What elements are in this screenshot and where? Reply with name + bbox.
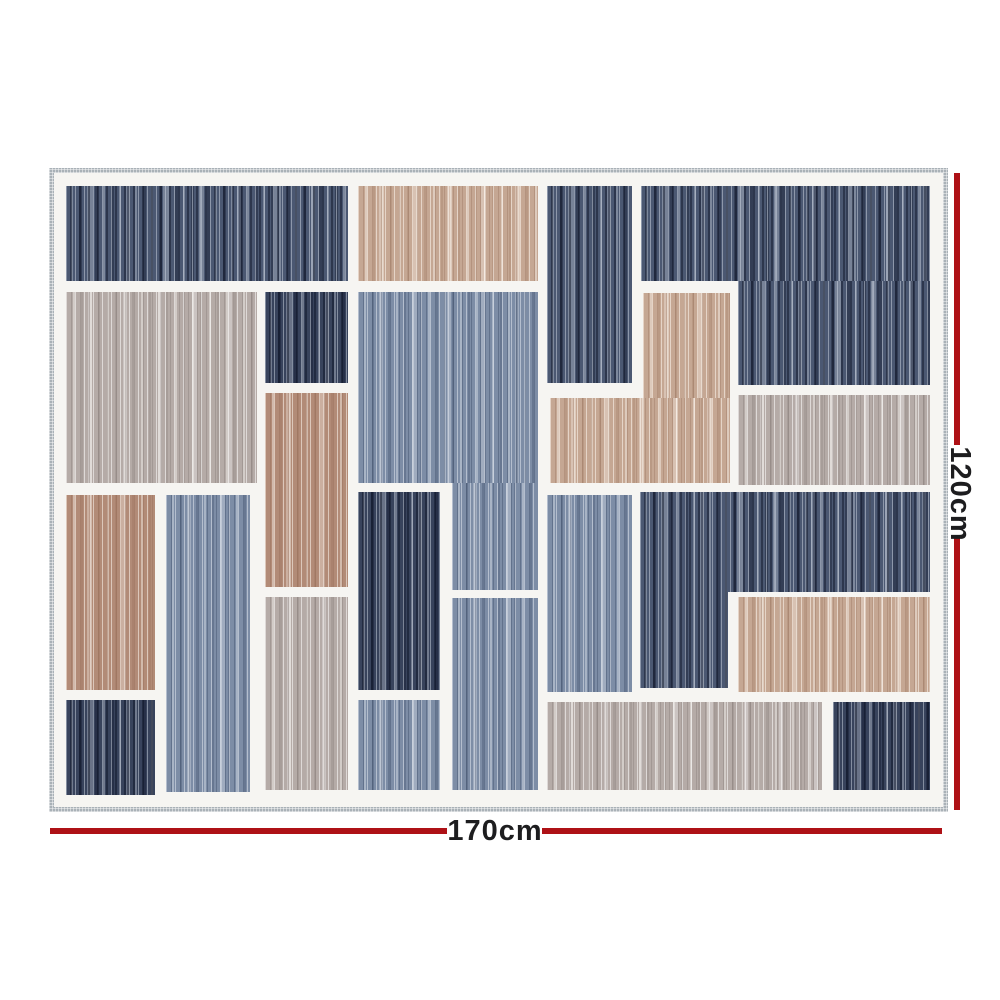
height-dimension-line-top (954, 173, 960, 445)
rug-block (547, 702, 822, 790)
rug-block (66, 186, 348, 281)
rug-block (452, 598, 538, 790)
rug-block (738, 395, 930, 485)
width-dimension-line-left (50, 828, 447, 834)
rug-block (265, 597, 348, 790)
rug-block (738, 597, 930, 692)
product-photo-canvas: 170cm 120cm (0, 0, 1000, 1000)
rug-block (641, 186, 930, 281)
rug-block (358, 700, 440, 790)
rug-block (358, 292, 538, 483)
rug-block (550, 398, 730, 483)
height-dimension-line-bottom (954, 538, 960, 810)
rug-block (66, 700, 155, 795)
rug-block (66, 495, 155, 690)
rug-block (738, 281, 930, 385)
rug-block (643, 293, 730, 398)
width-dimension-line-right (542, 828, 942, 834)
rug-block (166, 495, 250, 792)
rug-block (833, 702, 930, 790)
rug-block (358, 492, 440, 690)
rug-block (640, 492, 930, 592)
rug-block (452, 483, 538, 590)
height-label: 120cm (944, 439, 976, 549)
rug-photo (49, 168, 948, 812)
rug-block (265, 393, 348, 587)
width-label: 170cm (441, 815, 549, 847)
rug-block (66, 292, 257, 483)
rug-interior (66, 186, 930, 795)
rug-block (547, 186, 632, 383)
rug-block (265, 292, 348, 383)
rug-block (547, 495, 632, 692)
rug-block (358, 186, 538, 281)
rug-block (640, 592, 728, 688)
